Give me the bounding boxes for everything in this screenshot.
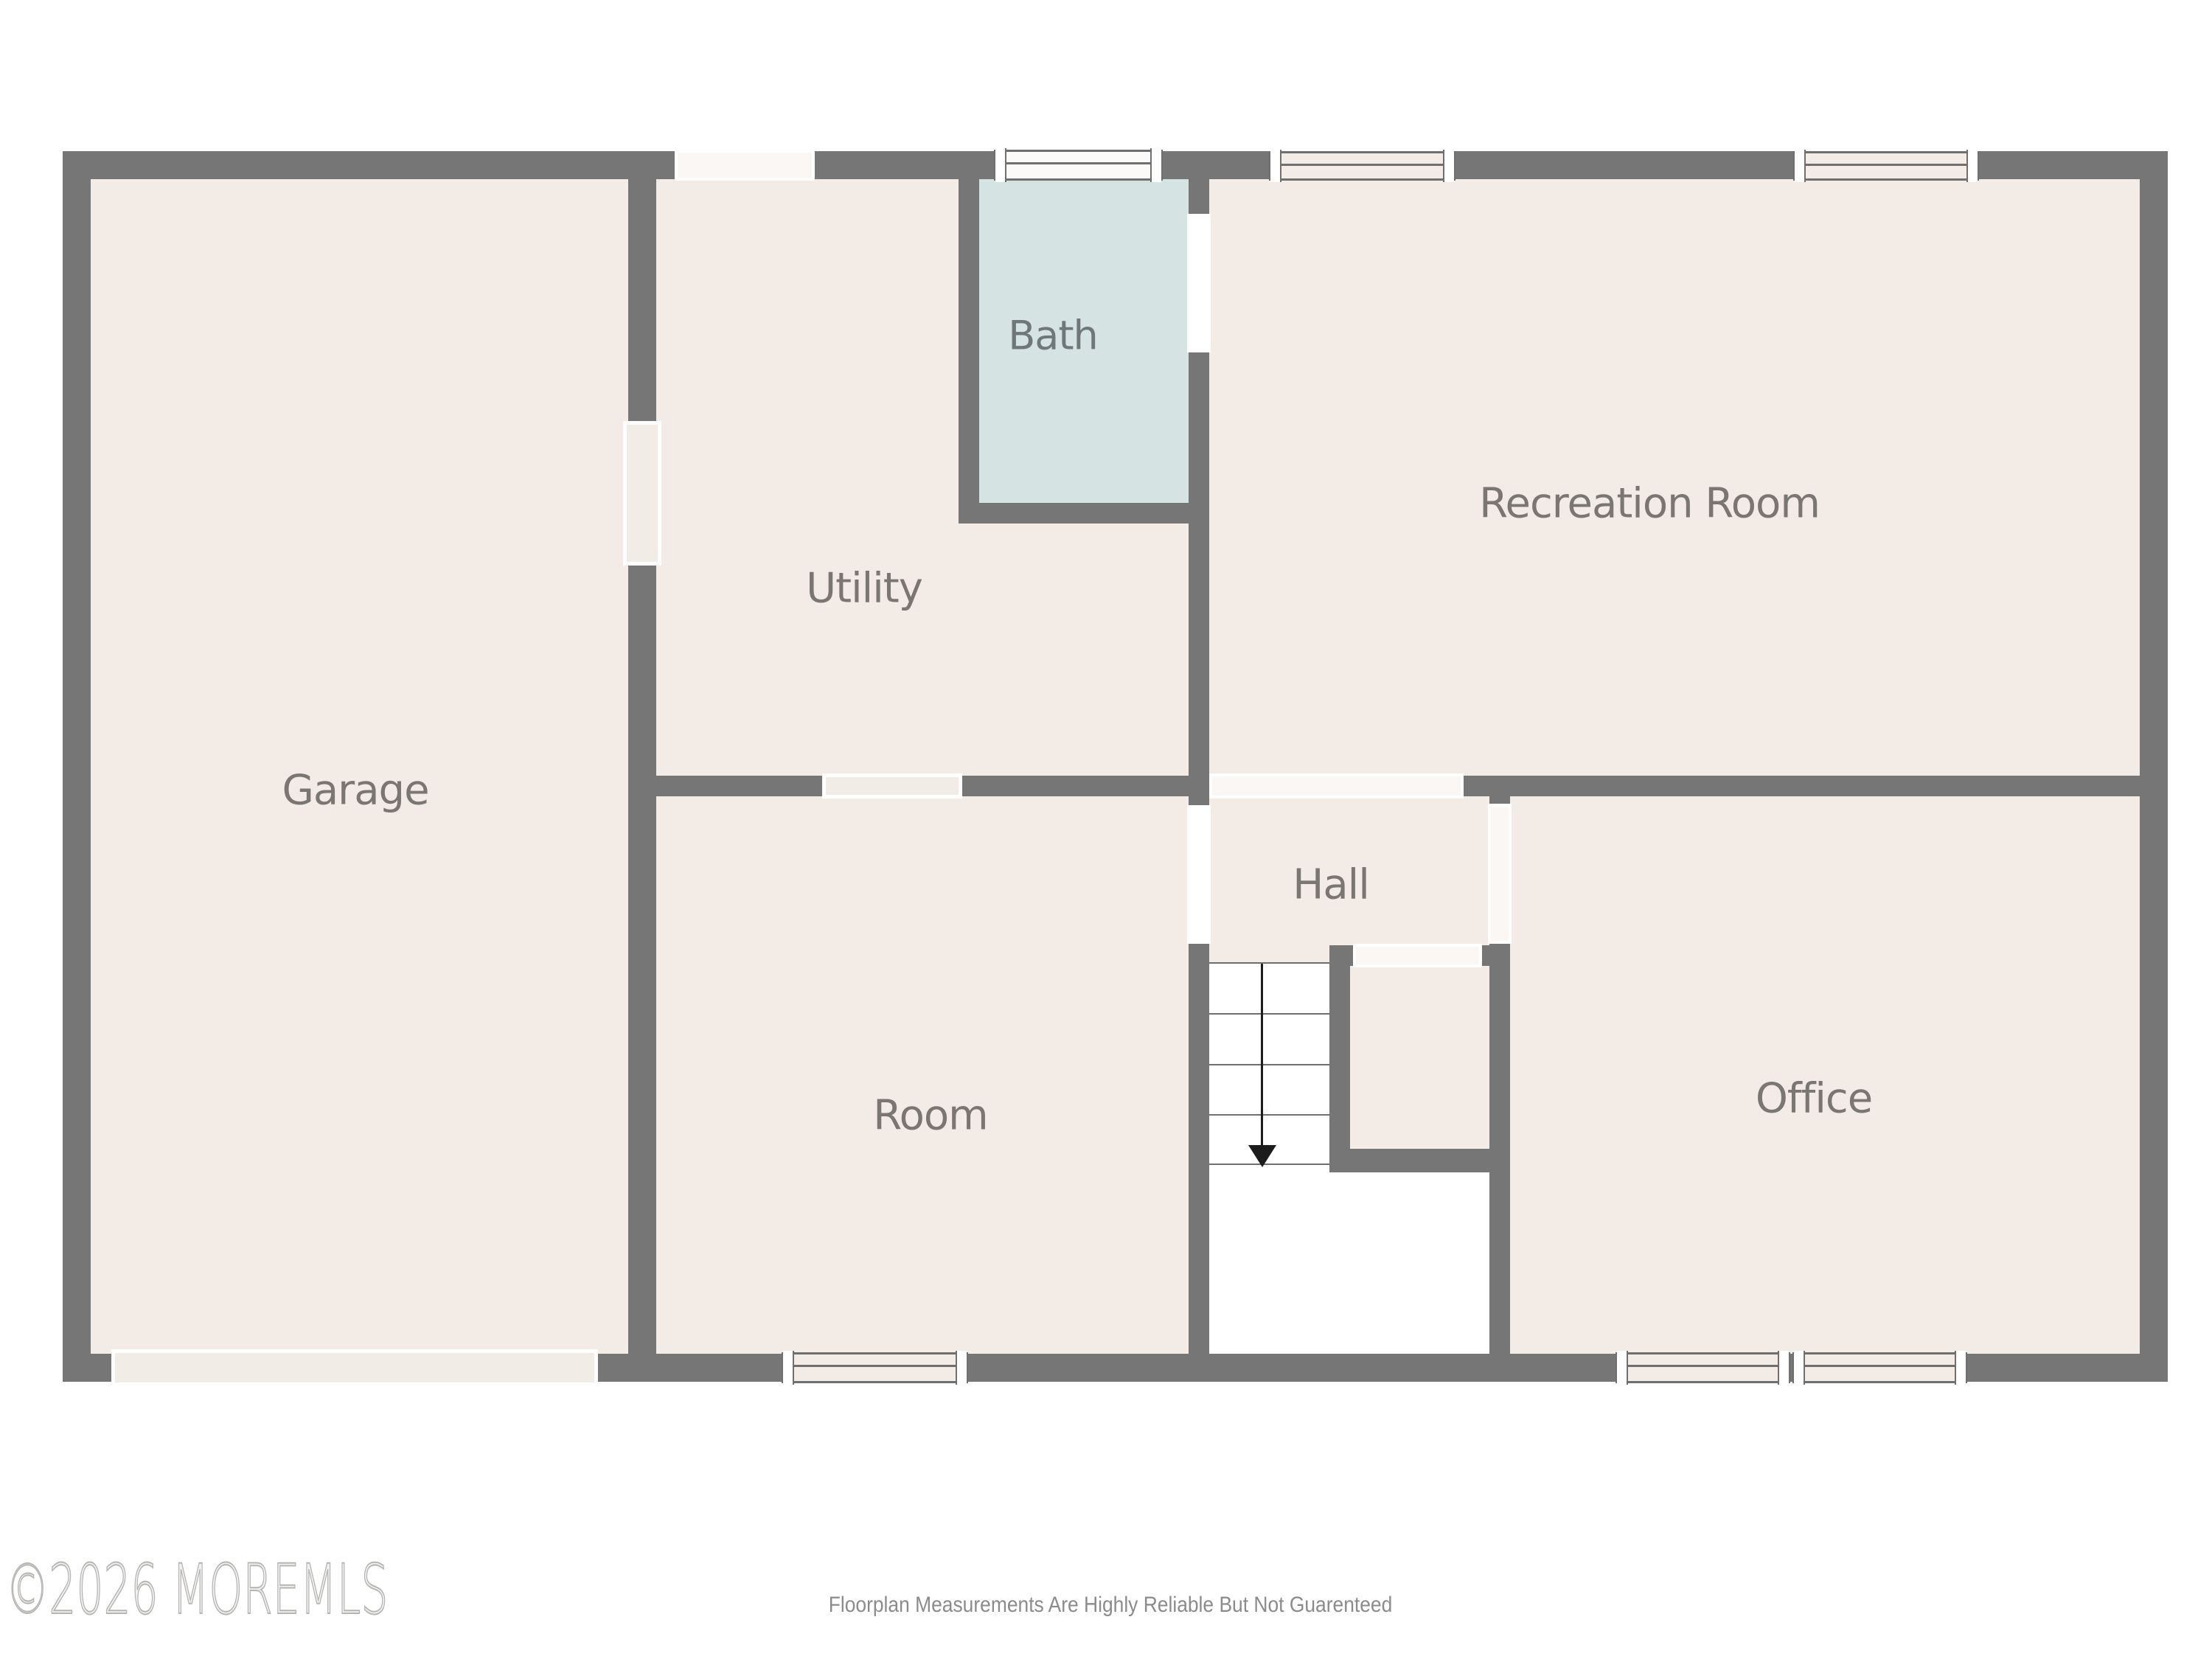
window-cap	[783, 1351, 794, 1385]
door-opening-room-hall	[1187, 805, 1211, 944]
door-opening-utility-room	[822, 773, 962, 799]
stair-step-line	[1209, 1114, 1329, 1116]
wall-closet-bottom	[1329, 1149, 1510, 1172]
wall-exterior-right	[2140, 151, 2168, 1382]
window-cap	[1955, 1351, 1966, 1385]
window-cap	[995, 148, 1006, 182]
wall-room-hall-lower	[1189, 944, 1209, 1354]
room-label-office: Office	[1756, 1075, 1872, 1123]
wide-opening-hall-top	[1209, 773, 1464, 799]
stair-step-line	[1209, 1013, 1329, 1015]
wall-closet-left	[1329, 945, 1350, 1172]
window-office-2	[1792, 1352, 1967, 1383]
window-rail	[1618, 1365, 1788, 1367]
window-cap	[1778, 1351, 1789, 1385]
down-arrow-icon	[1261, 964, 1263, 1150]
window-rail	[1795, 164, 1977, 166]
stairwell-void	[1209, 1165, 1489, 1354]
window-recreation-2	[1793, 151, 1979, 181]
floor-room	[656, 796, 1189, 1354]
door-opening-closet	[1353, 944, 1482, 967]
wall-exterior-left	[63, 151, 91, 1382]
window-cap	[1150, 148, 1161, 182]
door-opening-garage-utility	[623, 421, 661, 566]
window-cap	[1270, 150, 1281, 182]
floor-recreation-room	[1209, 179, 2140, 776]
mls-watermark: ©2026 MOREMLS	[6, 1552, 388, 1628]
stair-step-line	[1209, 962, 1329, 964]
door-opening-top-exterior	[675, 150, 815, 181]
room-label-bath: Bath	[1008, 313, 1098, 359]
window-recreation-1	[1269, 151, 1455, 181]
stair-step-line	[1209, 1064, 1329, 1065]
wall-garage-divider	[628, 179, 656, 1354]
floor-closet	[1350, 962, 1489, 1149]
window-bath	[994, 150, 1163, 181]
window-cap	[1795, 150, 1806, 182]
window-cap	[1617, 1351, 1628, 1385]
disclaimer-text: Floorplan Measurements Are Highly Reliab…	[829, 1593, 1393, 1618]
room-label-recreation-room: Recreation Room	[1479, 480, 1820, 528]
floorplan-canvas: Garage Utility Bath Recreation Room Hall…	[0, 0, 2212, 1659]
window-office-1	[1615, 1352, 1790, 1383]
room-label-room: Room	[873, 1092, 987, 1140]
room-label-utility: Utility	[806, 565, 922, 613]
window-rail	[1271, 164, 1453, 166]
window-cap	[1443, 150, 1454, 182]
down-arrow-icon	[1248, 1145, 1276, 1167]
window-rail	[996, 162, 1161, 164]
wall-bath-left	[959, 179, 979, 503]
room-label-garage: Garage	[282, 767, 428, 815]
staircase	[1209, 962, 1329, 1165]
wall-bath-bottom	[959, 503, 1209, 524]
door-opening-hall-office	[1488, 804, 1512, 944]
window-rail	[784, 1365, 966, 1367]
door-opening-bath	[1187, 214, 1211, 352]
window-cap	[1794, 1351, 1805, 1385]
window-cap	[1966, 150, 1978, 182]
window-cap	[956, 1351, 967, 1385]
garage-door-opening	[111, 1349, 598, 1386]
room-label-hall: Hall	[1293, 861, 1369, 909]
window-room	[782, 1352, 968, 1383]
window-rail	[1795, 1365, 1965, 1367]
